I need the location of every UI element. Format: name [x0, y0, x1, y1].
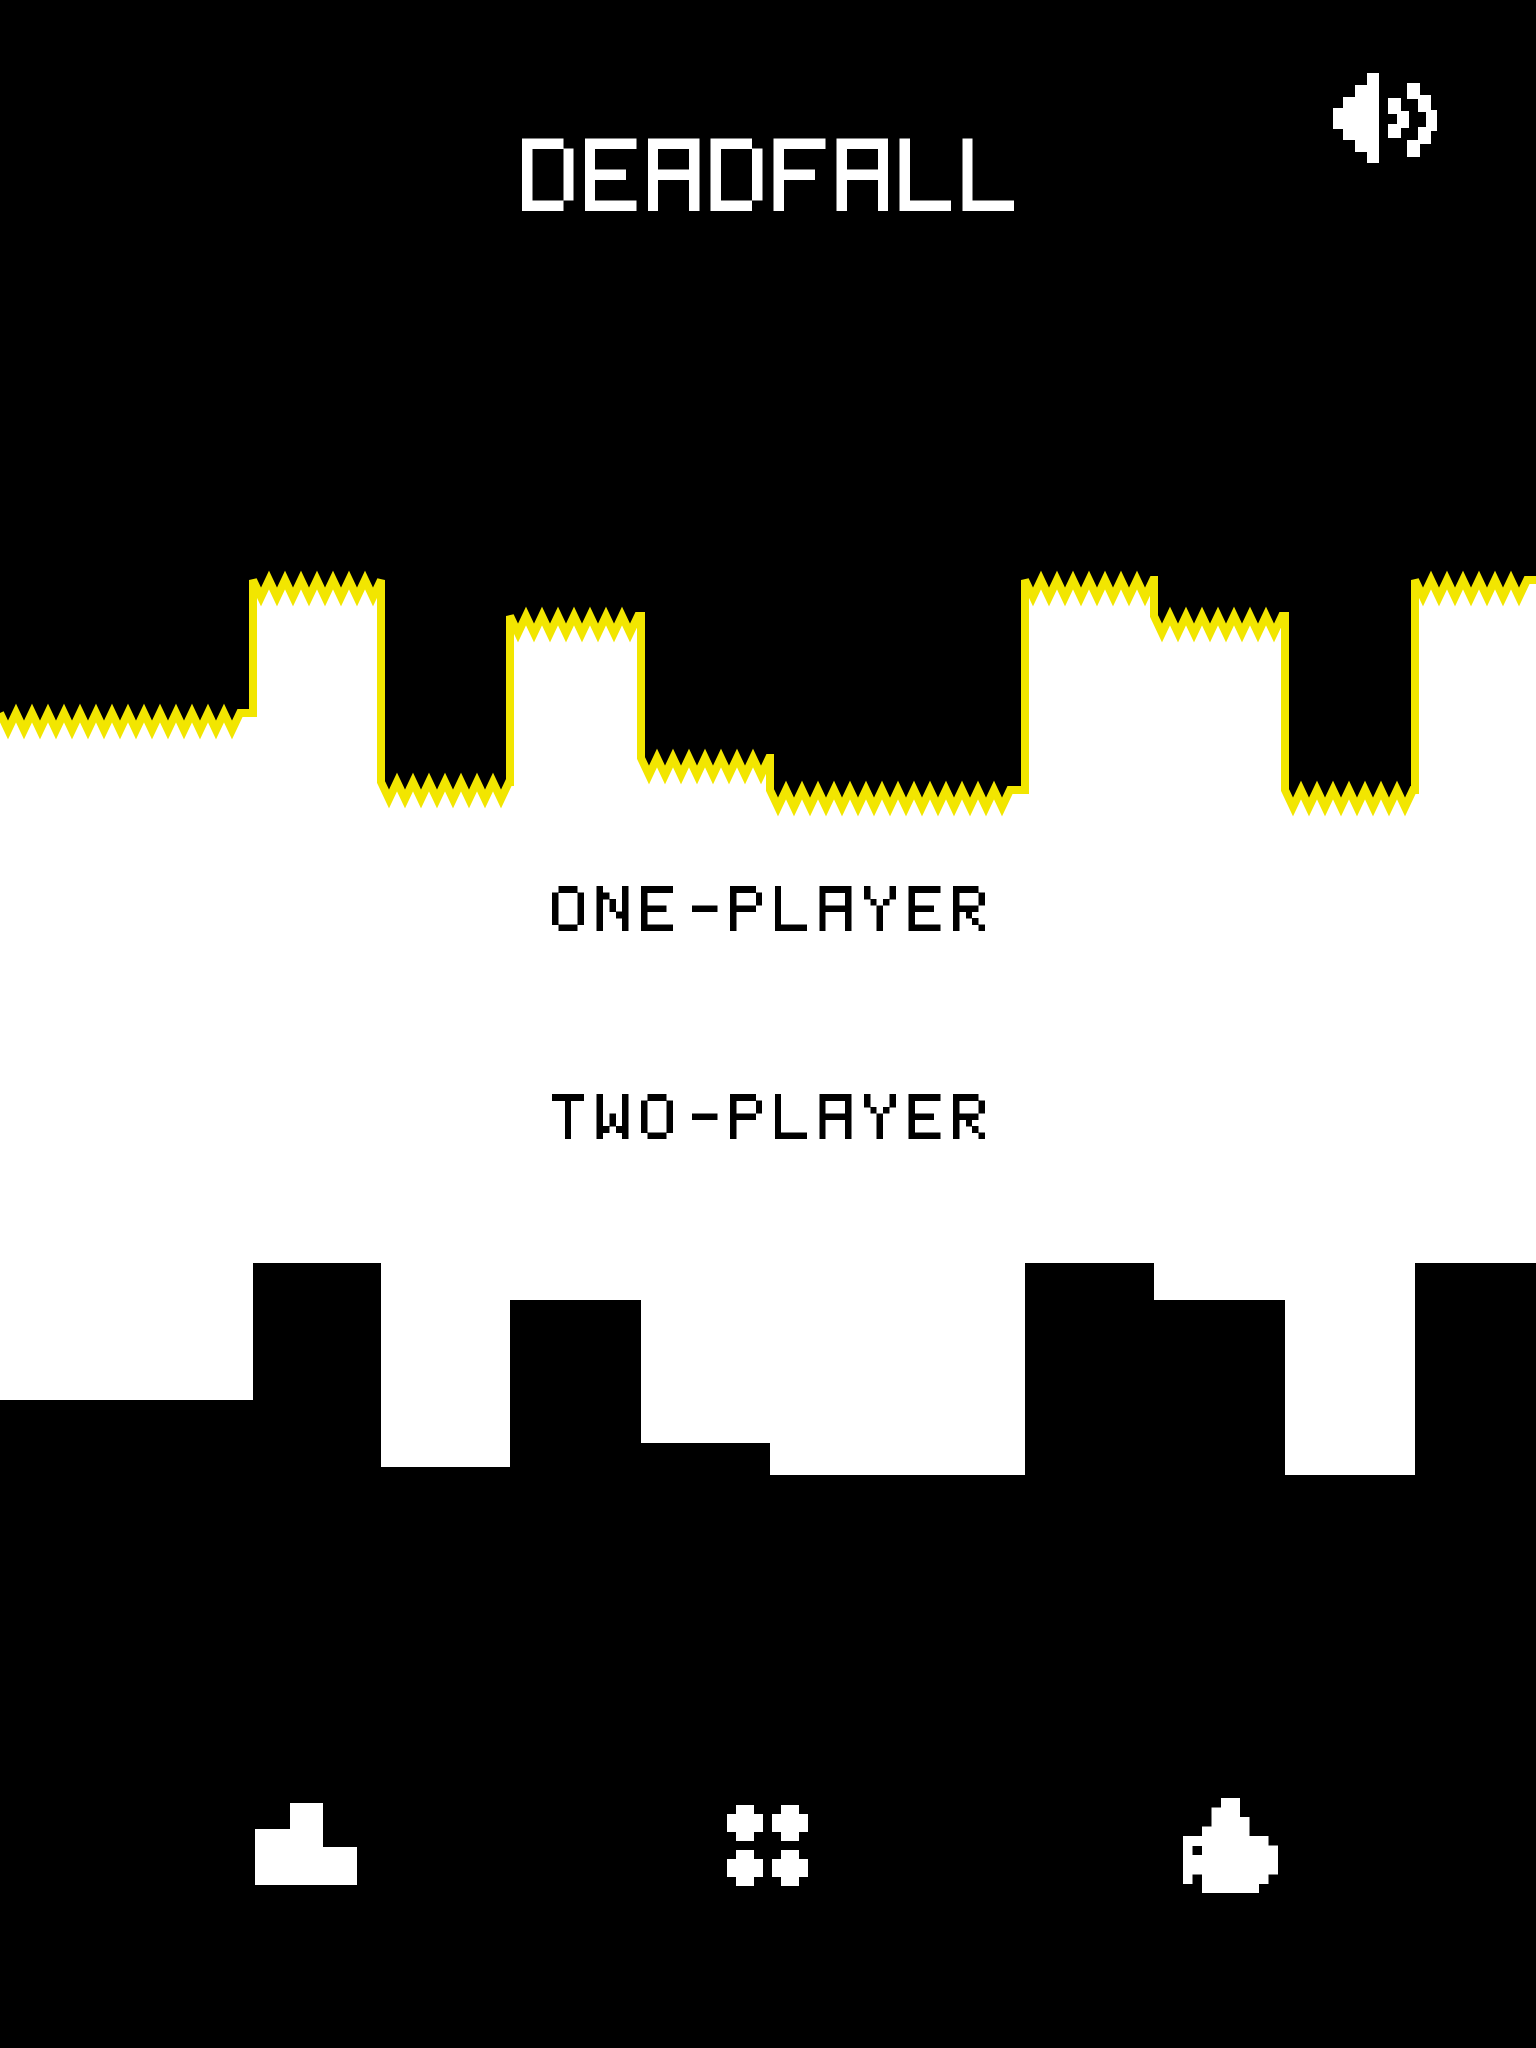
- menu-row-one-player: ONE-PLAYER: [0, 886, 1536, 931]
- podium-icon: [255, 1803, 357, 1885]
- game-title-screen: DEADFALL speaker-sound-on-icon ONE-PLAYE…: [0, 0, 1536, 2048]
- terrain-graphic: [0, 0, 1536, 2048]
- leaderboard-button[interactable]: podium-icon: [255, 1803, 357, 1885]
- terrain-lower-silhouette: [0, 1263, 1536, 2048]
- menu-row-two-player: TWO-PLAYER: [0, 1094, 1536, 1139]
- thumbs-up-icon: [1183, 1798, 1278, 1893]
- sound-toggle-button[interactable]: speaker-sound-on-icon: [1333, 73, 1437, 163]
- two-player-button[interactable]: TWO-PLAYER: [552, 1094, 985, 1139]
- terrain-upper-silhouette: [0, 0, 1536, 807]
- one-player-button[interactable]: ONE-PLAYER: [552, 886, 985, 931]
- more-games-button[interactable]: dots-grid-icon: [727, 1805, 808, 1886]
- speaker-sound-on-icon: [1333, 73, 1437, 163]
- page-title: DEADFALL: [522, 138, 1014, 211]
- title-row: DEADFALL: [0, 138, 1536, 211]
- rate-button[interactable]: thumbs-up-icon: [1183, 1798, 1278, 1893]
- dots-grid-icon: [727, 1805, 808, 1886]
